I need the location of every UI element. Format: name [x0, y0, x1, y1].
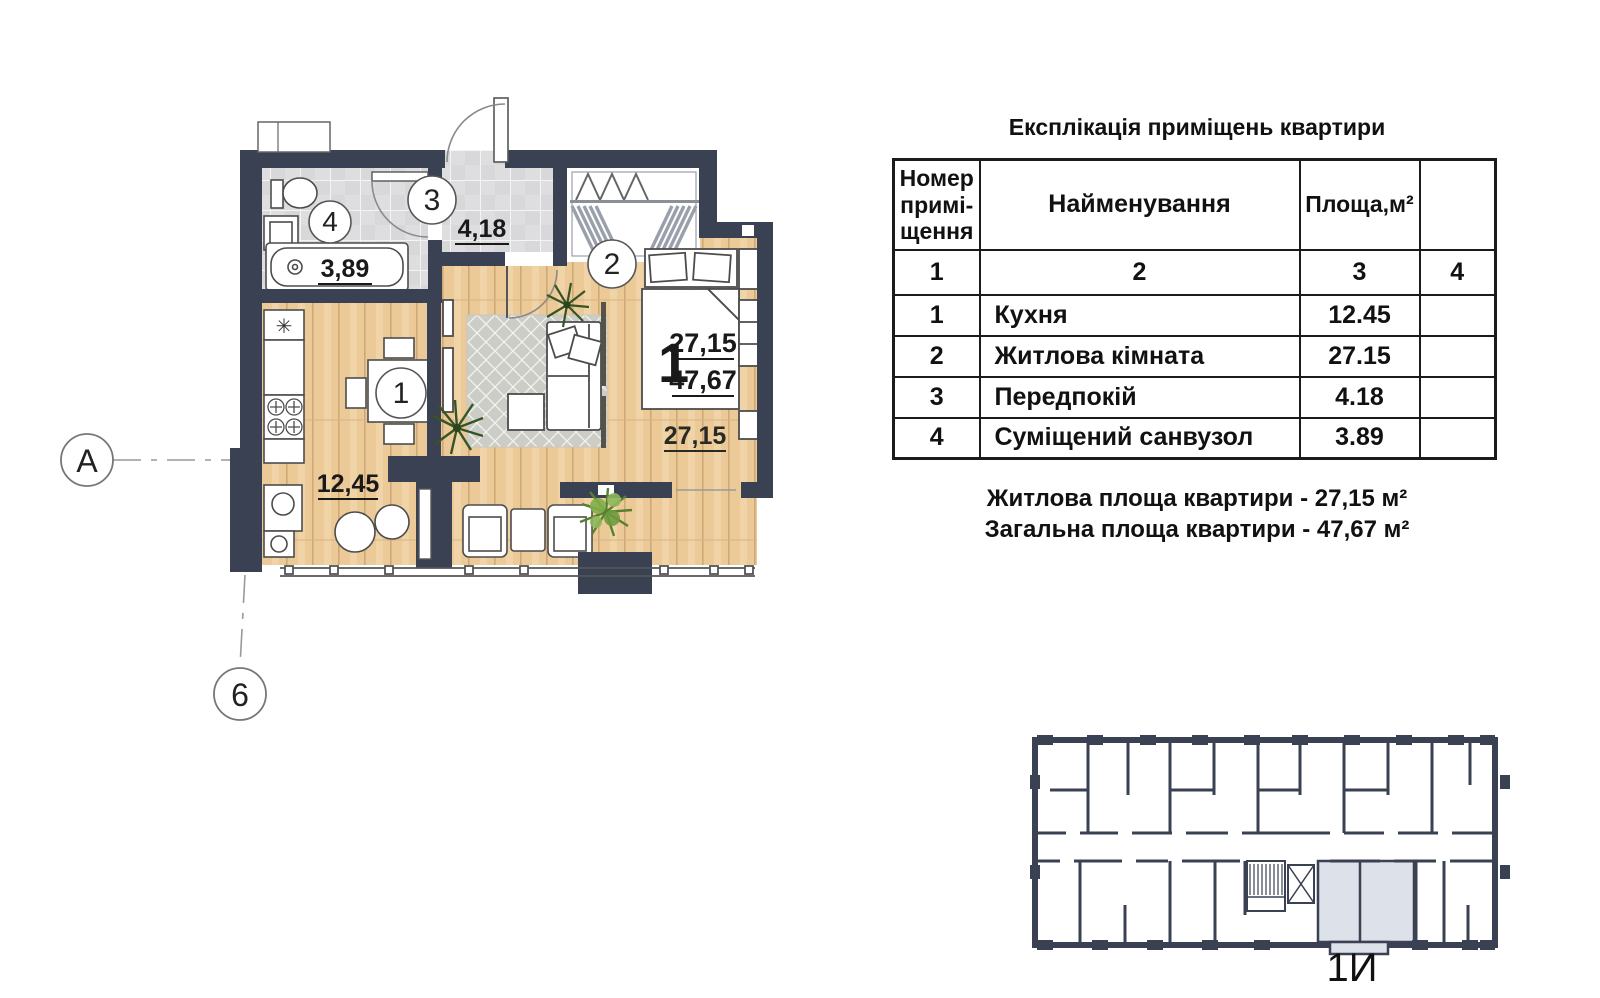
room-area: 3.89	[1300, 418, 1420, 459]
pillow	[649, 253, 687, 282]
column-number: 4	[1420, 250, 1496, 295]
coffee-table	[508, 394, 544, 430]
header-name: Найменування	[980, 160, 1300, 250]
kitchen-sink	[272, 493, 294, 515]
room-num: 2	[894, 336, 980, 377]
area-label-bath: 3,89	[321, 255, 370, 283]
pillow	[693, 253, 731, 282]
bistro-chair	[375, 505, 409, 539]
header-extra	[1420, 160, 1496, 250]
bathtub-drain-center	[293, 265, 298, 270]
area-label-living: 27,15	[664, 422, 727, 450]
table-row: 2 Житлова кімната 27.15	[894, 336, 1496, 377]
axis-label-a: А	[76, 443, 98, 479]
header-area: Площа,м²	[1300, 160, 1420, 250]
explication-title: Експлікація приміщень квартири	[892, 114, 1502, 141]
apartment-total-area: 47,67	[669, 365, 737, 395]
column-number: 1	[894, 250, 980, 295]
area-label-hall: 4,18	[458, 215, 507, 243]
explication-table: Номер примі- щення Найменування Площа,м²…	[892, 158, 1497, 460]
bed-side-shelf	[739, 300, 758, 366]
room-name: Передпокій	[980, 377, 1300, 418]
living-area-summary: Житлова площа квартири - 27,15 м²	[892, 483, 1502, 514]
room-extra	[1420, 295, 1496, 336]
bistro-table	[335, 512, 375, 552]
toilet-tank	[271, 180, 283, 208]
zone-partition	[601, 302, 606, 386]
apartment-living-area: 27,15	[669, 328, 737, 358]
area-summary: Житлова площа квартири - 27,15 м² Загаль…	[892, 483, 1502, 545]
room-num: 4	[894, 418, 980, 459]
table-row: 1 Кухня 12.45	[894, 295, 1496, 336]
balcony-table	[511, 509, 545, 551]
highlighted-unit	[1318, 861, 1414, 942]
kitchen-counter-low	[264, 439, 304, 463]
washing-machine-door	[271, 536, 287, 552]
column-number: 2	[980, 250, 1300, 295]
room-name: Житлова кімната	[980, 336, 1300, 377]
room-area: 12.45	[1300, 295, 1420, 336]
header-room-number: Номер примі- щення	[894, 160, 980, 250]
room-circle-1: 1	[393, 377, 410, 410]
table-row: 4 Суміщений санвузол 3.89	[894, 418, 1496, 459]
chair-top	[384, 338, 414, 358]
zone-partition	[601, 396, 606, 448]
toilet-bowl	[283, 178, 317, 208]
elevator	[1288, 865, 1314, 903]
stairwell	[1247, 861, 1285, 911]
nightstand-top	[739, 249, 758, 289]
chair-bottom	[384, 424, 414, 444]
room-extra	[1420, 377, 1496, 418]
chair-left	[346, 378, 366, 408]
balcony-chair-seat	[469, 517, 501, 551]
total-area-summary: Загальна площа квартири - 47,67 м²	[892, 514, 1502, 545]
balcony-railing	[280, 566, 755, 576]
washbasin-inner	[270, 222, 292, 244]
room-area: 27.15	[1300, 336, 1420, 377]
page: ✳	[0, 0, 1600, 998]
building-key-plan: 1И	[1000, 715, 1540, 995]
kitchen-counter	[264, 340, 304, 395]
room-circle-4: 4	[322, 206, 338, 237]
room-num: 3	[894, 377, 980, 418]
axis-label-6: 6	[231, 677, 249, 713]
room-name: Кухня	[980, 295, 1300, 336]
table-row: 3 Передпокій 4.18	[894, 377, 1496, 418]
vent-shaft	[258, 122, 330, 152]
key-plan-unit-label: 1И	[1327, 946, 1378, 990]
column-number: 3	[1300, 250, 1420, 295]
nightstand-bottom	[739, 411, 758, 439]
room-circle-2: 2	[604, 248, 621, 281]
room-num: 1	[894, 295, 980, 336]
apartment-floor-plan: ✳	[40, 80, 800, 760]
fridge-icon: ✳	[276, 316, 293, 338]
area-label-kitchen: 12,45	[317, 470, 380, 498]
room-circle-3: 3	[424, 184, 441, 217]
room-name: Суміщений санвузол	[980, 418, 1300, 459]
tv-shelf	[443, 300, 453, 336]
room-extra	[1420, 336, 1496, 377]
building-outline	[1035, 740, 1495, 945]
room-extra	[1420, 418, 1496, 459]
wall-slit	[742, 225, 754, 236]
room-area: 4.18	[1300, 377, 1420, 418]
tv-console	[443, 348, 453, 412]
